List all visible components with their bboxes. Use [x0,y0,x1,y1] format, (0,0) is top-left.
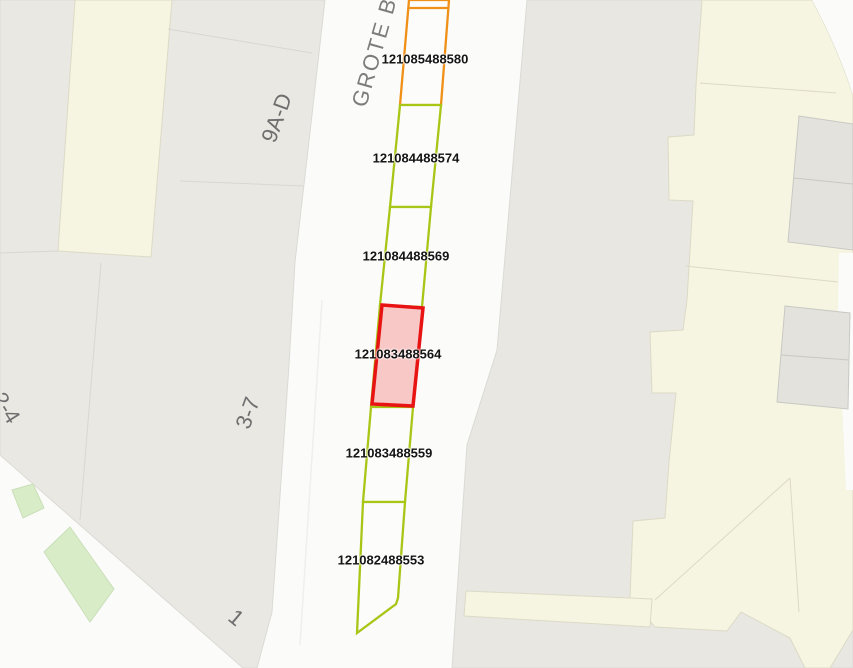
parcel-id-label: 121084488574 [373,151,460,166]
parcel-id-label: 121083488564 [355,347,442,362]
map-layers [0,0,853,668]
parcel-id-label: 121084488569 [363,249,450,264]
parcel-id-label: 121085488580 [382,52,469,67]
parcel-id-label: 121082488553 [338,553,425,568]
parcel-id-label: 121083488559 [346,446,433,461]
map-canvas[interactable]: GROTE BE 9A-D 3-7 1 2-4 121085488580 121… [0,0,853,668]
